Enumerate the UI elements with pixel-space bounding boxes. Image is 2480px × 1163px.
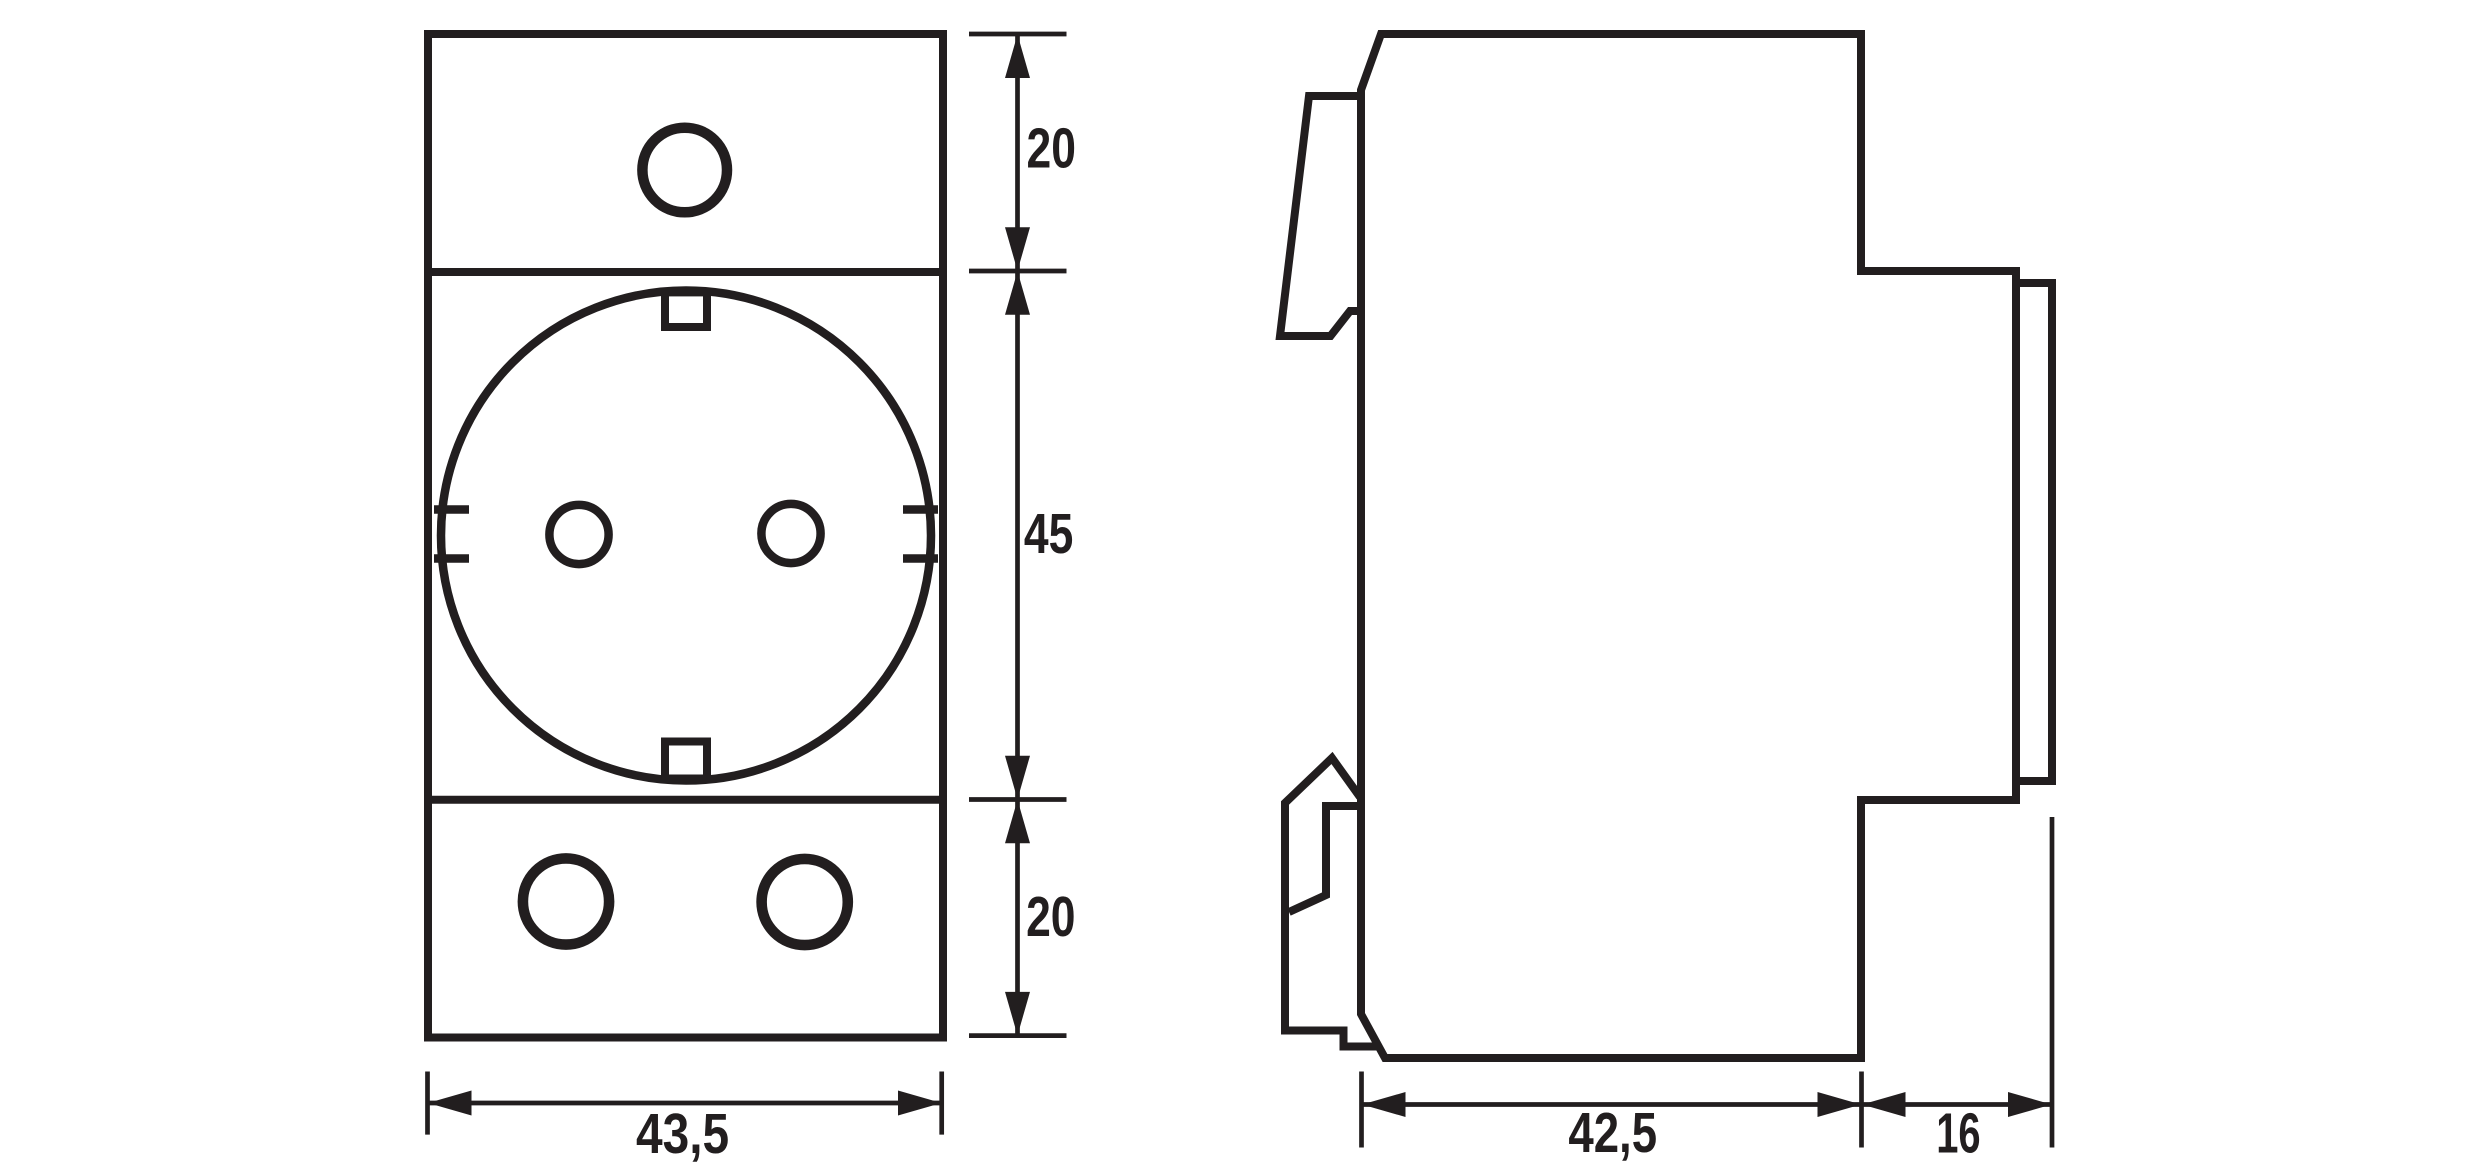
svg-text:20: 20 [1026, 116, 1075, 180]
svg-text:16: 16 [1936, 1102, 1980, 1163]
svg-text:20: 20 [1026, 885, 1075, 949]
svg-text:42,5: 42,5 [1568, 1100, 1657, 1163]
svg-text:43,5: 43,5 [636, 1102, 729, 1163]
svg-text:45: 45 [1024, 502, 1073, 566]
